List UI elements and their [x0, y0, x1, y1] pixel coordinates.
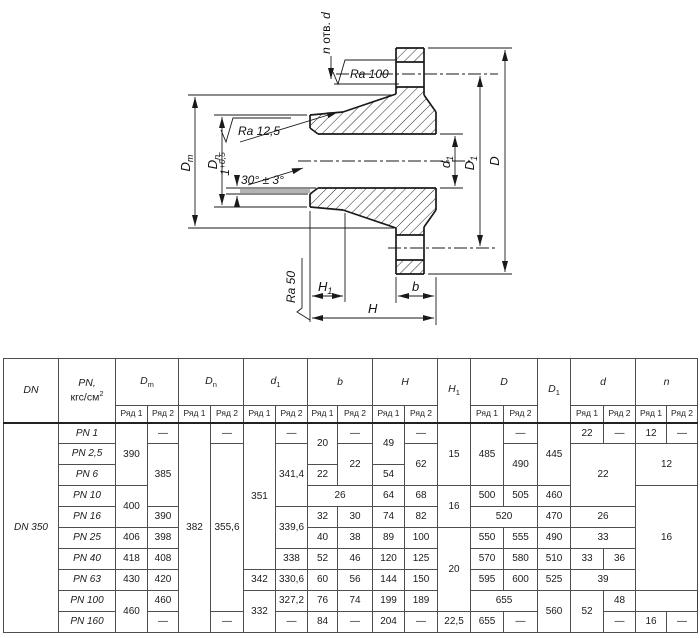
header-cell: Ряд 1: [116, 406, 148, 423]
table-row: PN 63430420342330,6605614415059560052539: [4, 570, 698, 591]
table-cell: —: [211, 423, 244, 444]
table-cell: 338: [276, 549, 308, 570]
table-cell: —: [604, 612, 636, 633]
flange-dimension-table: DNPN,кгс/см2DmDnd1bHH1DD1dnРяд 1Ряд 2Ряд…: [3, 358, 698, 633]
table-cell: 351: [244, 423, 276, 570]
table-cell: 460: [538, 486, 571, 507]
table-cell: 20: [308, 423, 338, 465]
table-cell: 26: [308, 486, 373, 507]
table-cell: —: [276, 423, 308, 444]
table-cell: 341,4: [276, 444, 308, 507]
table-cell: 144: [373, 570, 405, 591]
table-cell: 62: [405, 444, 438, 486]
table-cell: 520: [471, 507, 538, 528]
table-cell: 46: [338, 549, 373, 570]
table-cell: 74: [338, 591, 373, 612]
ra125-label: Ra 12,5: [238, 124, 280, 138]
table-cell: —: [148, 612, 179, 633]
header-cell: Ряд 2: [667, 406, 698, 423]
header-cell: DN: [4, 359, 59, 423]
table-cell: PN 16: [59, 507, 116, 528]
table-cell: 40: [308, 528, 338, 549]
table-cell: 56: [338, 570, 373, 591]
drawing-labels: n отв. d Ra 100 Ra 12,5 Ra 50 30° ± 3° 1…: [178, 12, 502, 316]
table-cell: 15: [438, 423, 471, 486]
header-cell: Ряд 2: [405, 406, 438, 423]
header-cell: b: [308, 359, 373, 406]
table-row: PN 2,5385355,6341,422624902212: [4, 444, 698, 465]
header-cell: Ряд 2: [504, 406, 538, 423]
header-cell: Ряд 2: [211, 406, 244, 423]
table-cell: 32: [308, 507, 338, 528]
table-cell: 36: [604, 549, 636, 570]
table-cell: —: [504, 423, 538, 444]
D1-label: D1: [462, 156, 479, 170]
table-cell: 12: [636, 423, 667, 444]
table-cell: 327,2: [276, 591, 308, 612]
table-cell: 54: [373, 465, 405, 486]
header-cell: d1: [244, 359, 308, 406]
table-cell: 39: [571, 570, 636, 591]
table-cell: PN 63: [59, 570, 116, 591]
table-cell: 408: [148, 549, 179, 570]
extension-lines: [188, 48, 512, 325]
table-row: PN 16390339,63230748252047026: [4, 507, 698, 528]
bolt-holes-label: n отв. d: [319, 12, 333, 54]
table-cell: PN 100: [59, 591, 116, 612]
table-cell: 390: [148, 507, 179, 528]
table-cell: PN 160: [59, 612, 116, 633]
table-cell: 550: [471, 528, 504, 549]
table-cell: —: [338, 423, 373, 444]
table-row: PN 4041840833852461201255705805103336: [4, 549, 698, 570]
header-cell: Ряд 1: [571, 406, 604, 423]
table-cell: 22: [308, 465, 338, 486]
dimension-table-area: DNPN,кгс/см2DmDnd1bHH1DD1dnРяд 1Ряд 2Ряд…: [0, 357, 700, 633]
table-cell: 125: [405, 549, 438, 570]
table-cell: 33: [571, 549, 604, 570]
table-cell: 30: [338, 507, 373, 528]
table-cell: 52: [571, 591, 604, 633]
table-cell: 22: [571, 444, 636, 507]
header-cell: Ряд 2: [276, 406, 308, 423]
table-cell: 390: [116, 423, 148, 486]
table-cell: 398: [148, 528, 179, 549]
table-cell: 64: [373, 486, 405, 507]
table-cell: 430: [116, 570, 148, 591]
header-cell: Ряд 1: [179, 406, 211, 423]
table-cell: 68: [405, 486, 438, 507]
header-cell: Ряд 1: [244, 406, 276, 423]
header-cell: Ряд 1: [373, 406, 405, 423]
table-cell: 22: [571, 423, 604, 444]
table-cell: 420: [148, 570, 179, 591]
table-cell: PN 10: [59, 486, 116, 507]
table-cell: 20: [438, 528, 471, 612]
table-cell: —: [148, 423, 179, 444]
header-cell: PN,кгс/см2: [59, 359, 116, 423]
table-cell: 199: [373, 591, 405, 612]
table-cell: 342: [244, 570, 276, 591]
table-cell: 485: [471, 423, 504, 486]
table-cell: 406: [116, 528, 148, 549]
table-cell: 355,6: [211, 444, 244, 612]
header-cell: Dm: [116, 359, 179, 406]
table-cell: 339,6: [276, 507, 308, 549]
header-cell: D: [471, 359, 538, 406]
header-cell: H1: [438, 359, 471, 423]
d1-label: d1: [438, 156, 455, 168]
table-cell: 418: [116, 549, 148, 570]
table-cell: —: [405, 423, 438, 444]
header-cell: Ряд 2: [148, 406, 179, 423]
table-cell: 525: [538, 570, 571, 591]
table-cell: 382: [179, 423, 211, 633]
dm-label: Dm: [178, 154, 195, 171]
table-cell: 49: [373, 423, 405, 465]
H-label: H: [368, 301, 378, 316]
table-cell: 12: [636, 444, 698, 486]
chamfer-angle-label: 30° ± 3°: [241, 173, 284, 187]
flange-cross-section-drawing: n отв. d Ra 100 Ra 12,5 Ra 50 30° ± 3° 1…: [0, 0, 700, 357]
table-cell: 595: [471, 570, 504, 591]
header-cell: D1: [538, 359, 571, 423]
table-cell: 400: [116, 486, 148, 528]
header-cell: d: [571, 359, 636, 406]
table-cell: 560: [538, 591, 571, 633]
flange-spec-page: n отв. d Ra 100 Ra 12,5 Ra 50 30° ± 3° 1…: [0, 0, 700, 638]
table-cell: 600: [504, 570, 538, 591]
table-cell: 490: [504, 444, 538, 486]
table-cell: 52: [308, 549, 338, 570]
table-cell: 16: [636, 486, 698, 591]
table-cell: —: [604, 423, 636, 444]
table-cell: 460: [116, 591, 148, 633]
ra100-label: Ra 100: [350, 67, 389, 81]
table-cell: 60: [308, 570, 338, 591]
table-cell: DN 350: [4, 423, 59, 633]
b-label: b: [412, 279, 419, 294]
table-cell: 16: [438, 486, 471, 528]
table-row: DN 350PN 1390—382—351—20—49—15485—44522—…: [4, 423, 698, 444]
header-cell: H: [373, 359, 438, 406]
table-cell: 22: [338, 444, 373, 486]
table-cell: —: [338, 612, 373, 633]
table-cell: 16: [636, 612, 667, 633]
table-cell: —: [667, 423, 698, 444]
table-cell: PN 40: [59, 549, 116, 570]
table-cell: 470: [538, 507, 571, 528]
table-cell: 655: [471, 591, 538, 612]
table-cell: 22,5: [438, 612, 471, 633]
table-cell: —: [211, 612, 244, 633]
table-cell: 580: [504, 549, 538, 570]
table-cell: 38: [338, 528, 373, 549]
table-cell: —: [405, 612, 438, 633]
table-row: PN 254063984038891002055055549033: [4, 528, 698, 549]
table-cell: 189: [405, 591, 438, 612]
ra50-label: Ra 50: [284, 271, 298, 303]
table-cell: 385: [148, 444, 179, 507]
table-cell: PN 2,5: [59, 444, 116, 465]
table-row: PN 100460460332327,276741991896555605248: [4, 591, 698, 612]
H1-label: H1: [318, 279, 332, 296]
table-cell: 460: [148, 591, 179, 612]
table-cell: 89: [373, 528, 405, 549]
header-cell: Ряд 1: [636, 406, 667, 423]
table-cell: 150: [405, 570, 438, 591]
table-cell: 570: [471, 549, 504, 570]
header-cell: Ряд 1: [308, 406, 338, 423]
header-cell: Ряд 2: [338, 406, 373, 423]
table-cell: 555: [504, 528, 538, 549]
header-cell: n: [636, 359, 698, 406]
table-cell: 84: [308, 612, 338, 633]
table-cell: 204: [373, 612, 405, 633]
roughness-mark-face: [297, 258, 310, 320]
table-cell: 76: [308, 591, 338, 612]
header-cell: Ряд 2: [604, 406, 636, 423]
table-cell: 330,6: [276, 570, 308, 591]
table-cell: 655: [471, 612, 504, 633]
table-cell: 332: [244, 591, 276, 633]
header-cell: Dn: [179, 359, 244, 406]
header-cell: Ряд 1: [471, 406, 504, 423]
table-cell: —: [667, 612, 698, 633]
table-cell: 510: [538, 549, 571, 570]
table-cell: PN 6: [59, 465, 116, 486]
table-cell: 505: [504, 486, 538, 507]
table-cell: PN 1: [59, 423, 116, 444]
dn-label: Dn: [205, 155, 222, 169]
table-cell: 74: [373, 507, 405, 528]
table-cell: 33: [571, 528, 636, 549]
table-cell: 82: [405, 507, 438, 528]
table-cell: 100: [405, 528, 438, 549]
flange-drawing-area: n отв. d Ra 100 Ra 12,5 Ra 50 30° ± 3° 1…: [0, 0, 700, 357]
table-cell: 500: [471, 486, 504, 507]
table-cell: PN 25: [59, 528, 116, 549]
table-cell: 120: [373, 549, 405, 570]
D-label: D: [487, 156, 502, 165]
table-cell: 48: [604, 591, 636, 612]
table-cell: —: [504, 612, 538, 633]
table-cell: 445: [538, 423, 571, 486]
table-cell: —: [276, 612, 308, 633]
table-cell: 490: [538, 528, 571, 549]
table-cell: 26: [571, 507, 636, 528]
